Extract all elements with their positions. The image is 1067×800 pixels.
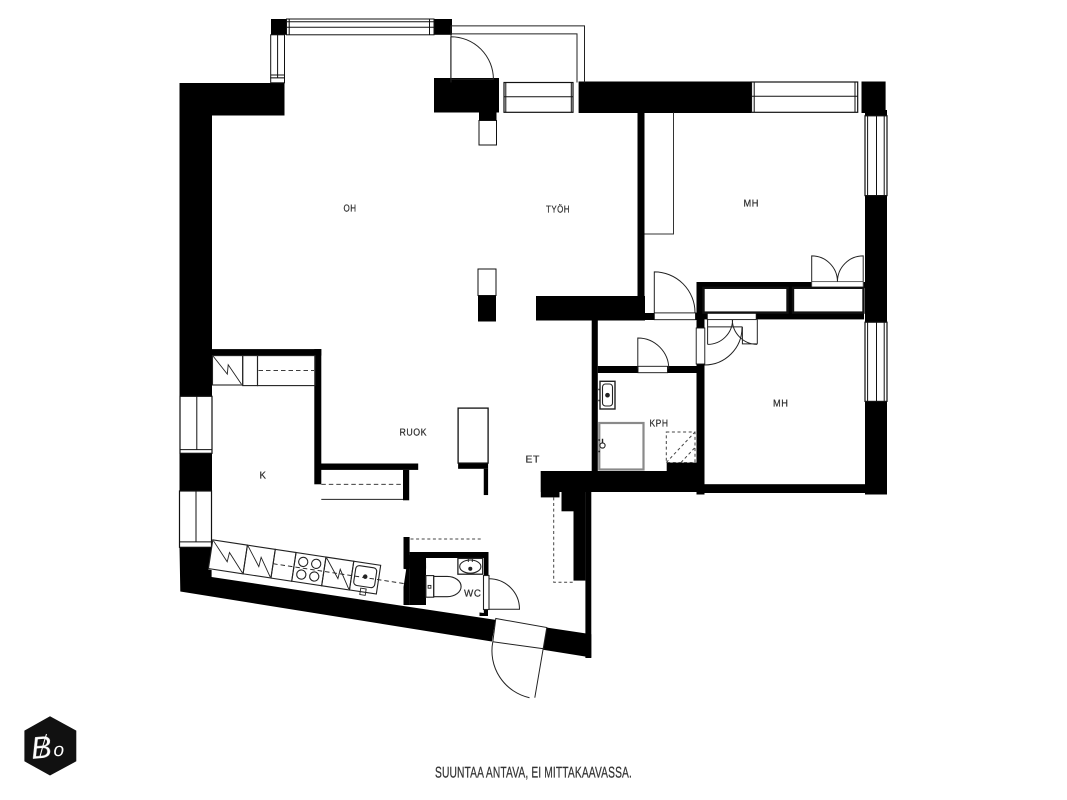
svg-text:K: K (260, 471, 267, 482)
svg-text:MH: MH (744, 199, 760, 210)
svg-text:RUOK: RUOK (400, 428, 428, 439)
svg-text:o: o (54, 740, 65, 761)
svg-text:B: B (29, 729, 53, 766)
svg-text:SUUNTAA ANTAVA, EI MITTAKAAVAS: SUUNTAA ANTAVA, EI MITTAKAAVASSA. (435, 765, 632, 782)
svg-text:WC: WC (464, 589, 482, 600)
svg-text:MH: MH (773, 399, 789, 410)
svg-text:KPH: KPH (650, 419, 669, 430)
svg-text:TYÖH: TYÖH (546, 204, 570, 216)
svg-text:OH: OH (344, 204, 357, 215)
svg-text:ET: ET (526, 455, 541, 466)
